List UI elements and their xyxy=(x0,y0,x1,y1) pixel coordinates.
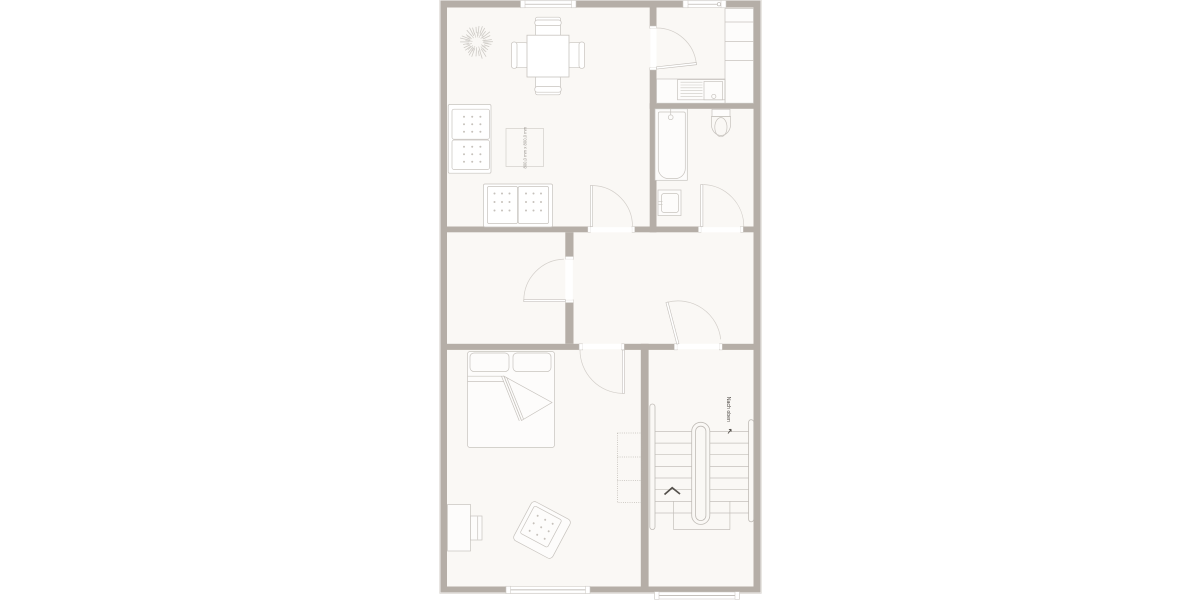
svg-text:Nach oben: Nach oben xyxy=(725,397,731,422)
svg-text:800,0 mm x 800,0 mm: 800,0 mm x 800,0 mm xyxy=(523,126,528,168)
